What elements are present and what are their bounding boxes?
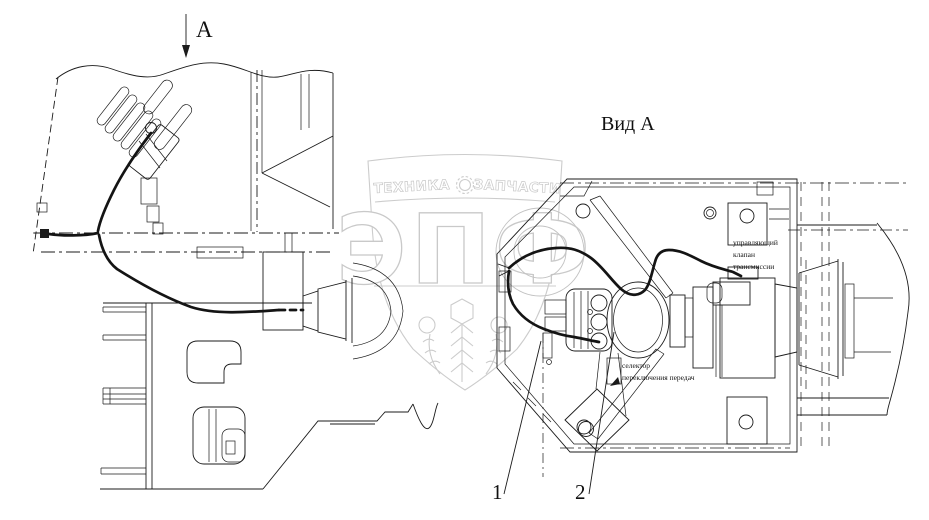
selector-annotation: селектор переключения передач	[610, 361, 695, 386]
svg-text:переключения передач: переключения передач	[622, 373, 695, 382]
bell-housing	[788, 182, 909, 452]
callout-1-label: 1	[492, 480, 503, 504]
parts-diagram: ТЕХНИКА ЗАПЧАСТИ ЭПФ А	[0, 0, 929, 520]
arrowhead	[182, 45, 190, 58]
svg-text:управляющий: управляющий	[733, 238, 778, 247]
control-cable	[33, 133, 303, 312]
control-levers	[95, 85, 162, 159]
gear-icon	[457, 177, 474, 194]
transmission-valve	[670, 267, 797, 378]
watermark-emblem: ТЕХНИКА ЗАПЧАСТИ ЭПФ	[336, 155, 594, 391]
steering-column	[128, 124, 181, 234]
svg-text:селектор: селектор	[622, 361, 650, 370]
callout-1: 1	[492, 341, 541, 504]
section-arrow: А	[182, 14, 213, 58]
svg-text:трансмиссии: трансмиссии	[733, 262, 774, 271]
view-a-title: Вид А	[601, 113, 655, 135]
svg-text:клапан: клапан	[733, 250, 755, 259]
steering-wheel	[141, 78, 194, 152]
annotation-arrowhead	[610, 377, 620, 386]
diagram-page: ТЕХНИКА ЗАПЧАСТИ ЭПФ А	[0, 0, 929, 520]
section-arrow-label: А	[196, 17, 213, 42]
callout-2-label: 2	[575, 480, 586, 504]
valve-annotation: управляющий клапан трансмиссии	[733, 238, 778, 271]
